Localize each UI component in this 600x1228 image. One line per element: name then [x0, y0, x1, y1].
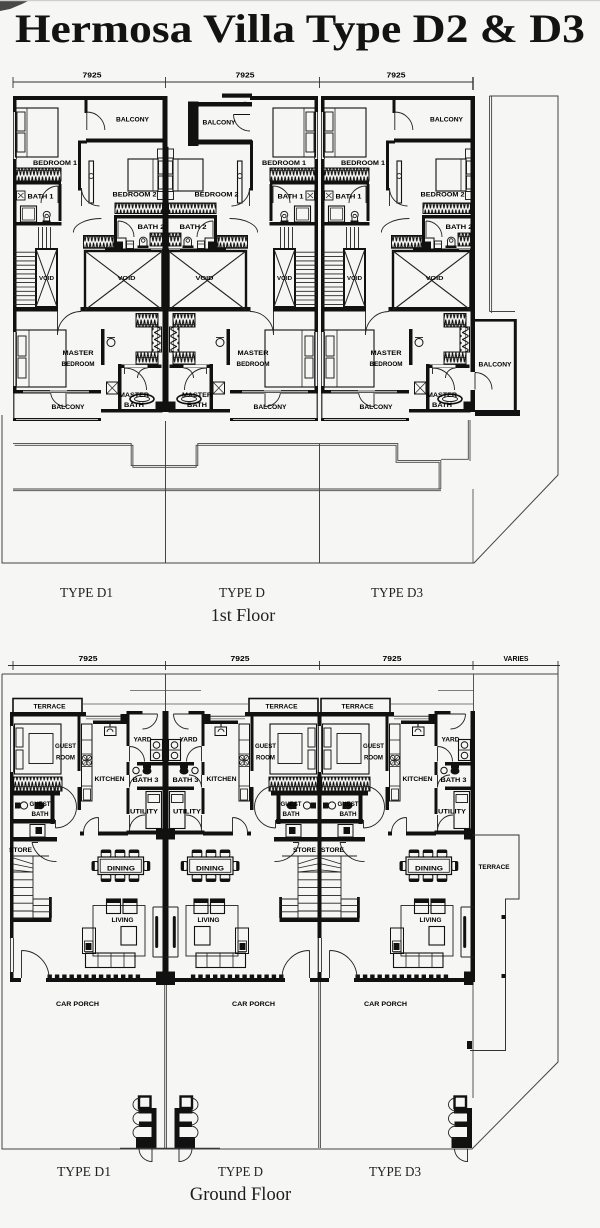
svg-text:BEDROOM: BEDROOM: [237, 361, 270, 368]
svg-text:KITCHEN: KITCHEN: [207, 776, 237, 783]
svg-text:GUEST: GUEST: [30, 802, 51, 808]
svg-text:TERRACE: TERRACE: [342, 704, 374, 711]
svg-text:7925: 7925: [383, 656, 402, 663]
svg-text:BEDROOM 1: BEDROOM 1: [33, 160, 78, 167]
svg-text:TERRACE: TERRACE: [34, 704, 66, 711]
svg-text:7925: 7925: [231, 656, 250, 663]
svg-text:STORE: STORE: [321, 847, 344, 854]
svg-text:LIVING: LIVING: [198, 917, 220, 924]
svg-text:BATH: BATH: [283, 812, 300, 818]
svg-text:BATH: BATH: [187, 402, 208, 409]
svg-text:BALCONY: BALCONY: [254, 404, 288, 411]
svg-text:UTILITY: UTILITY: [438, 809, 467, 816]
svg-text:CAR PORCH: CAR PORCH: [56, 1001, 99, 1008]
svg-text:Ground Floor: Ground Floor: [190, 1185, 291, 1205]
svg-text:BALCONY: BALCONY: [203, 120, 237, 127]
svg-text:MASTER: MASTER: [119, 392, 150, 399]
svg-text:MASTER: MASTER: [238, 350, 270, 357]
svg-text:BATH: BATH: [432, 402, 453, 409]
svg-text:BALCONY: BALCONY: [430, 117, 464, 124]
svg-text:CAR PORCH: CAR PORCH: [232, 1001, 275, 1008]
svg-text:BEDROOM 2: BEDROOM 2: [113, 192, 158, 199]
svg-text:1st Floor: 1st Floor: [211, 605, 276, 625]
svg-text:TYPE D: TYPE D: [218, 1164, 263, 1179]
svg-text:7925: 7925: [83, 73, 102, 80]
svg-text:ROOM: ROOM: [256, 755, 275, 762]
svg-text:BATH 3: BATH 3: [441, 777, 468, 784]
svg-text:BEDROOM: BEDROOM: [62, 361, 95, 368]
svg-text:GUEST: GUEST: [255, 743, 276, 750]
svg-text:VOID: VOID: [277, 276, 292, 282]
svg-text:BEDROOM 1: BEDROOM 1: [341, 160, 386, 167]
svg-text:LIVING: LIVING: [112, 917, 134, 924]
svg-text:BEDROOM 2: BEDROOM 2: [421, 192, 466, 199]
svg-text:MASTER: MASTER: [427, 392, 458, 399]
svg-text:DINING: DINING: [415, 866, 443, 873]
svg-text:MASTER: MASTER: [182, 392, 213, 399]
svg-text:BATH 2: BATH 2: [138, 224, 166, 231]
svg-text:ROOM: ROOM: [364, 755, 383, 762]
svg-text:BATH: BATH: [124, 402, 145, 409]
svg-text:GUEST: GUEST: [281, 802, 302, 808]
svg-text:7925: 7925: [387, 73, 406, 80]
svg-text:TYPE D: TYPE D: [219, 585, 265, 600]
svg-text:BALCONY: BALCONY: [52, 404, 86, 411]
svg-text:BEDROOM 2: BEDROOM 2: [195, 192, 240, 199]
svg-text:BATH: BATH: [340, 812, 357, 818]
svg-text:CAR PORCH: CAR PORCH: [364, 1001, 407, 1008]
svg-text:KITCHEN: KITCHEN: [95, 776, 125, 783]
svg-text:BATH 1: BATH 1: [336, 194, 363, 201]
svg-text:BATH 2: BATH 2: [446, 224, 474, 231]
svg-text:YARD: YARD: [180, 737, 199, 744]
svg-text:GUEST: GUEST: [338, 802, 359, 808]
svg-text:UTILITY: UTILITY: [173, 809, 202, 816]
svg-text:BALCONY: BALCONY: [479, 362, 513, 369]
svg-text:ROOM: ROOM: [56, 755, 75, 762]
svg-text:BATH 3: BATH 3: [173, 777, 200, 784]
svg-text:BATH 1: BATH 1: [278, 194, 305, 201]
svg-text:VOID: VOID: [426, 276, 444, 282]
svg-text:DINING: DINING: [196, 866, 224, 873]
svg-text:TERRACE: TERRACE: [479, 864, 510, 871]
svg-text:LIVING: LIVING: [420, 917, 442, 924]
svg-text:VOID: VOID: [118, 276, 136, 282]
svg-text:VOID: VOID: [196, 276, 214, 282]
svg-text:7925: 7925: [236, 73, 255, 80]
svg-text:KITCHEN: KITCHEN: [403, 776, 433, 783]
svg-text:7925: 7925: [79, 656, 98, 663]
svg-text:BEDROOM: BEDROOM: [370, 361, 403, 368]
svg-text:TYPE D3: TYPE D3: [371, 585, 423, 600]
svg-text:TERRACE: TERRACE: [266, 704, 298, 711]
svg-text:VOID: VOID: [39, 276, 54, 282]
svg-text:UTILITY: UTILITY: [130, 809, 159, 816]
svg-text:DINING: DINING: [107, 866, 135, 873]
svg-text:GUEST: GUEST: [55, 743, 76, 750]
svg-text:MASTER: MASTER: [371, 350, 403, 357]
svg-text:BALCONY: BALCONY: [116, 117, 150, 124]
svg-text:YARD: YARD: [134, 737, 153, 744]
svg-text:TYPE D1: TYPE D1: [60, 585, 113, 600]
svg-text:BALCONY: BALCONY: [360, 404, 394, 411]
svg-text:BATH 3: BATH 3: [133, 777, 160, 784]
svg-text:TYPE D1: TYPE D1: [57, 1164, 111, 1179]
svg-text:VARIES: VARIES: [504, 656, 529, 663]
svg-text:MASTER: MASTER: [63, 350, 95, 357]
svg-text:YARD: YARD: [442, 737, 461, 744]
svg-text:STORE: STORE: [293, 847, 316, 854]
svg-text:VOID: VOID: [347, 276, 362, 282]
svg-text:BATH 1: BATH 1: [28, 194, 55, 201]
svg-text:STORE: STORE: [9, 847, 32, 854]
svg-text:BATH: BATH: [32, 812, 49, 818]
svg-text:BEDROOM 1: BEDROOM 1: [262, 160, 307, 167]
svg-text:GUEST: GUEST: [363, 743, 384, 750]
svg-text:BATH 2: BATH 2: [180, 224, 208, 231]
svg-text:Hermosa Villa Type D2 & D3: Hermosa Villa Type D2 & D3: [15, 6, 585, 51]
svg-text:TYPE D3: TYPE D3: [369, 1164, 421, 1179]
